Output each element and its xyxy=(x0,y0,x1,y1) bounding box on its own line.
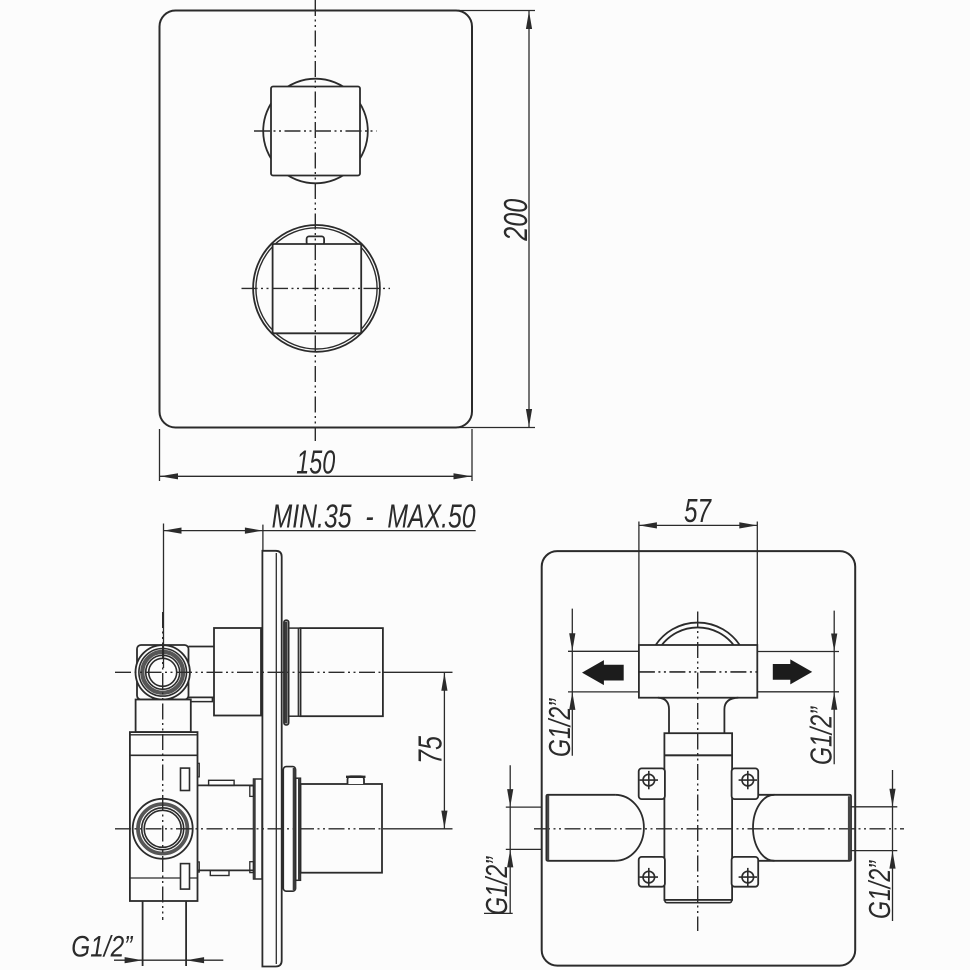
svg-text:G1/2”: G1/2” xyxy=(862,860,897,919)
svg-text:150: 150 xyxy=(296,444,335,481)
svg-text:G1/2”: G1/2” xyxy=(71,931,134,964)
svg-text:G1/2”: G1/2” xyxy=(804,706,839,765)
svg-text:G1/2”: G1/2” xyxy=(479,856,514,915)
svg-text:75: 75 xyxy=(412,736,449,764)
svg-text:200: 200 xyxy=(497,198,534,241)
svg-text:G1/2”: G1/2” xyxy=(542,698,577,757)
svg-text:MIN.35 - MAX.50: MIN.35 - MAX.50 xyxy=(272,497,476,534)
svg-text:57: 57 xyxy=(684,492,712,529)
